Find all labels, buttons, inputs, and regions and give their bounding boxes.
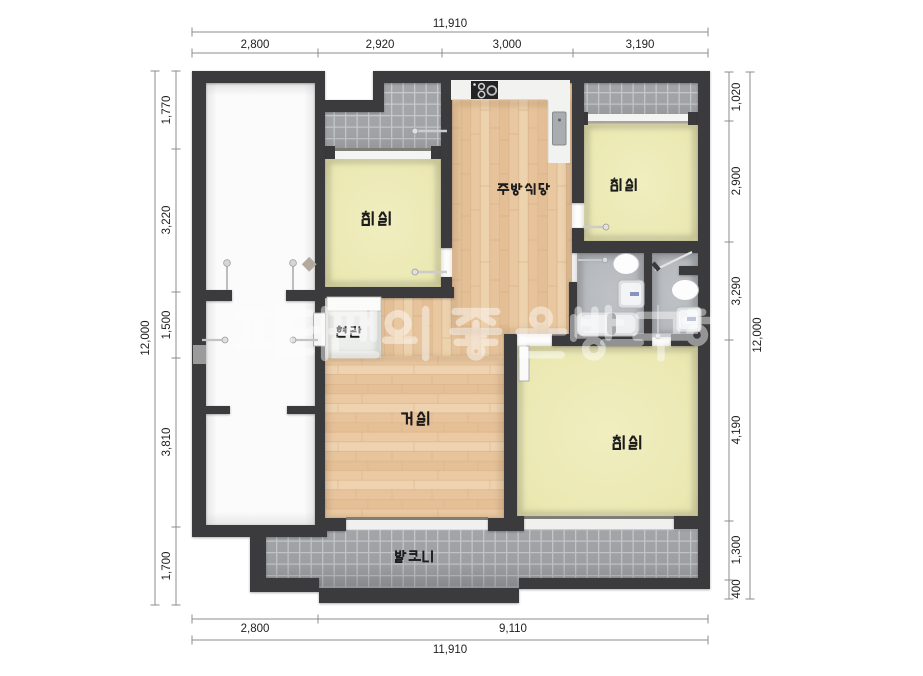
svg-text:3,220: 3,220: [161, 206, 173, 235]
svg-text:2,900: 2,900: [731, 167, 743, 196]
svg-text:1,020: 1,020: [731, 83, 743, 112]
svg-text:12,000: 12,000: [752, 317, 764, 352]
svg-text:1,770: 1,770: [161, 96, 173, 125]
svg-text:9,110: 9,110: [499, 623, 527, 635]
svg-text:12,000: 12,000: [140, 320, 152, 355]
svg-text:3,000: 3,000: [493, 39, 522, 51]
svg-text:2,800: 2,800: [241, 623, 270, 635]
svg-text:3,810: 3,810: [161, 428, 173, 457]
svg-text:11,910: 11,910: [433, 18, 467, 30]
svg-text:3,190: 3,190: [626, 39, 655, 51]
svg-text:400: 400: [731, 579, 743, 598]
svg-text:2,920: 2,920: [366, 39, 395, 51]
svg-text:11,910: 11,910: [433, 644, 467, 656]
svg-text:1,300: 1,300: [731, 536, 743, 565]
svg-text:4,190: 4,190: [731, 416, 743, 445]
svg-text:2,800: 2,800: [241, 39, 270, 51]
svg-text:1,700: 1,700: [161, 552, 173, 581]
svg-text:3,290: 3,290: [731, 277, 743, 306]
svg-text:1,500: 1,500: [161, 311, 173, 340]
